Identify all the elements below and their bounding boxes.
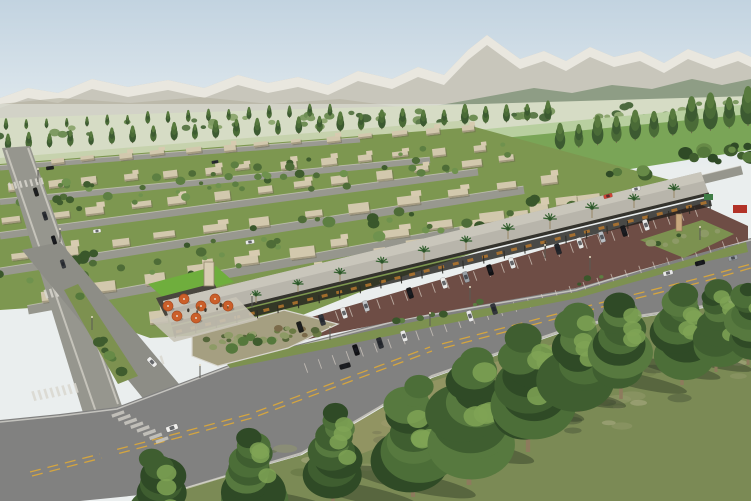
red-monument-sign <box>733 205 747 213</box>
aerial-render <box>0 0 751 501</box>
anchor-tower <box>204 262 214 286</box>
house <box>376 169 394 182</box>
house <box>214 190 232 203</box>
house <box>432 147 447 158</box>
aerial-render-canvas <box>0 0 751 501</box>
green-wayfinding-sign <box>704 194 713 200</box>
entry-monument <box>676 214 682 231</box>
